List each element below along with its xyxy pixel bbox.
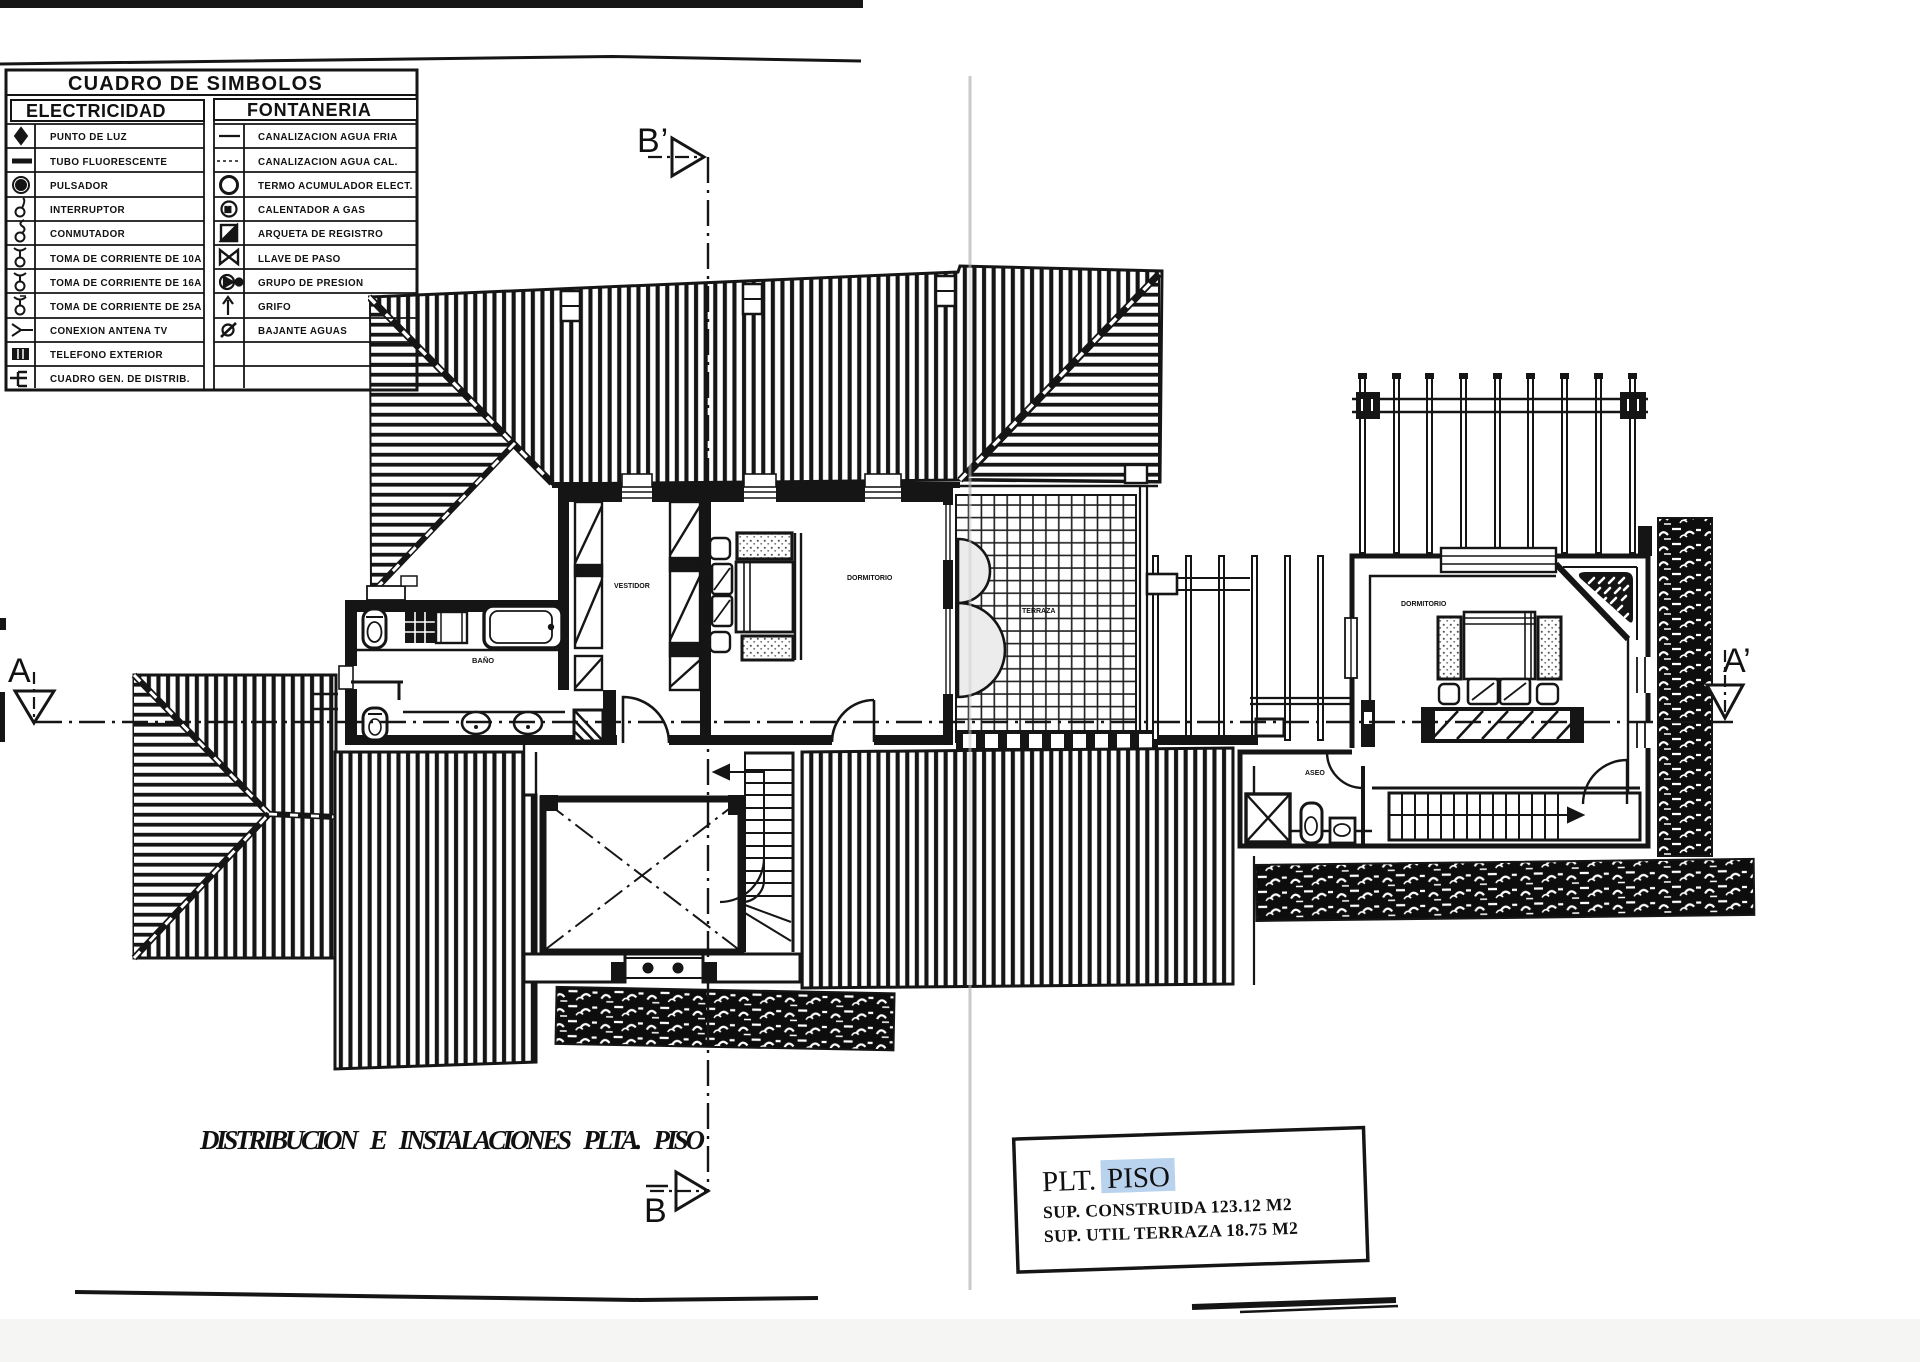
svg-text:CONMUTADOR: CONMUTADOR — [50, 229, 125, 240]
svg-text:PISO: PISO — [1107, 1161, 1171, 1195]
svg-text:A: A — [8, 652, 31, 690]
svg-text:BAÑO: BAÑO — [472, 656, 494, 665]
svg-text:M: M — [225, 207, 231, 214]
svg-text:PLT.: PLT. — [1042, 1164, 1097, 1198]
svg-text:BAJANTE AGUAS: BAJANTE AGUAS — [258, 326, 347, 337]
svg-text:CANALIZACION AGUA CAL.: CANALIZACION AGUA CAL. — [258, 157, 398, 168]
svg-text:CUADRO DE SIMBOLOS: CUADRO DE SIMBOLOS — [68, 73, 323, 95]
svg-text:PULSADOR: PULSADOR — [50, 181, 108, 192]
svg-text:A’: A’ — [1723, 642, 1751, 680]
svg-text:INTERRUPTOR: INTERRUPTOR — [50, 205, 125, 216]
svg-text:DISTRIBUCION E INSTALACIONES: DISTRIBUCION E INSTALACIONES PLTA. PISO — [199, 1125, 705, 1155]
svg-text:B: B — [644, 1192, 667, 1230]
svg-text:PUNTO DE LUZ: PUNTO DE LUZ — [50, 132, 127, 143]
svg-text:LLAVE DE PASO: LLAVE DE PASO — [258, 254, 341, 265]
svg-text:TERRAZA: TERRAZA — [1022, 608, 1055, 615]
svg-text:TELEFONO EXTERIOR: TELEFONO EXTERIOR — [50, 350, 163, 361]
svg-text:TUBO FLUORESCENTE: TUBO FLUORESCENTE — [50, 157, 167, 168]
svg-text:TERMO ACUMULADOR ELECT.: TERMO ACUMULADOR ELECT. — [258, 181, 413, 192]
svg-text:B’: B’ — [637, 122, 669, 160]
svg-text:TOMA DE CORRIENTE DE 10A: TOMA DE CORRIENTE DE 10A — [50, 254, 202, 265]
svg-text:TOMA DE CORRIENTE DE 25A: TOMA DE CORRIENTE DE 25A — [50, 302, 202, 313]
svg-text:CUADRO GEN. DE DISTRIB.: CUADRO GEN. DE DISTRIB. — [50, 374, 190, 385]
svg-text:VESTIDOR: VESTIDOR — [614, 583, 650, 590]
svg-text:ASEO: ASEO — [1305, 770, 1325, 777]
svg-text:GRIFO: GRIFO — [258, 302, 291, 313]
svg-text:GRUPO DE PRESION: GRUPO DE PRESION — [258, 278, 363, 289]
svg-text:CONEXION ANTENA TV: CONEXION ANTENA TV — [50, 326, 168, 337]
svg-text:DORMITORIO: DORMITORIO — [1401, 601, 1447, 608]
svg-text:FONTANERIA: FONTANERIA — [247, 100, 372, 120]
svg-text:ARQUETA DE REGISTRO: ARQUETA DE REGISTRO — [258, 229, 383, 240]
svg-text:CANALIZACION AGUA FRIA: CANALIZACION AGUA FRIA — [258, 132, 398, 143]
svg-text:CALENTADOR A GAS: CALENTADOR A GAS — [258, 205, 365, 216]
svg-text:ELECTRICIDAD: ELECTRICIDAD — [26, 101, 166, 121]
svg-text:TOMA DE CORRIENTE DE 16A: TOMA DE CORRIENTE DE 16A — [50, 278, 202, 289]
svg-text:DORMITORIO: DORMITORIO — [847, 575, 893, 582]
